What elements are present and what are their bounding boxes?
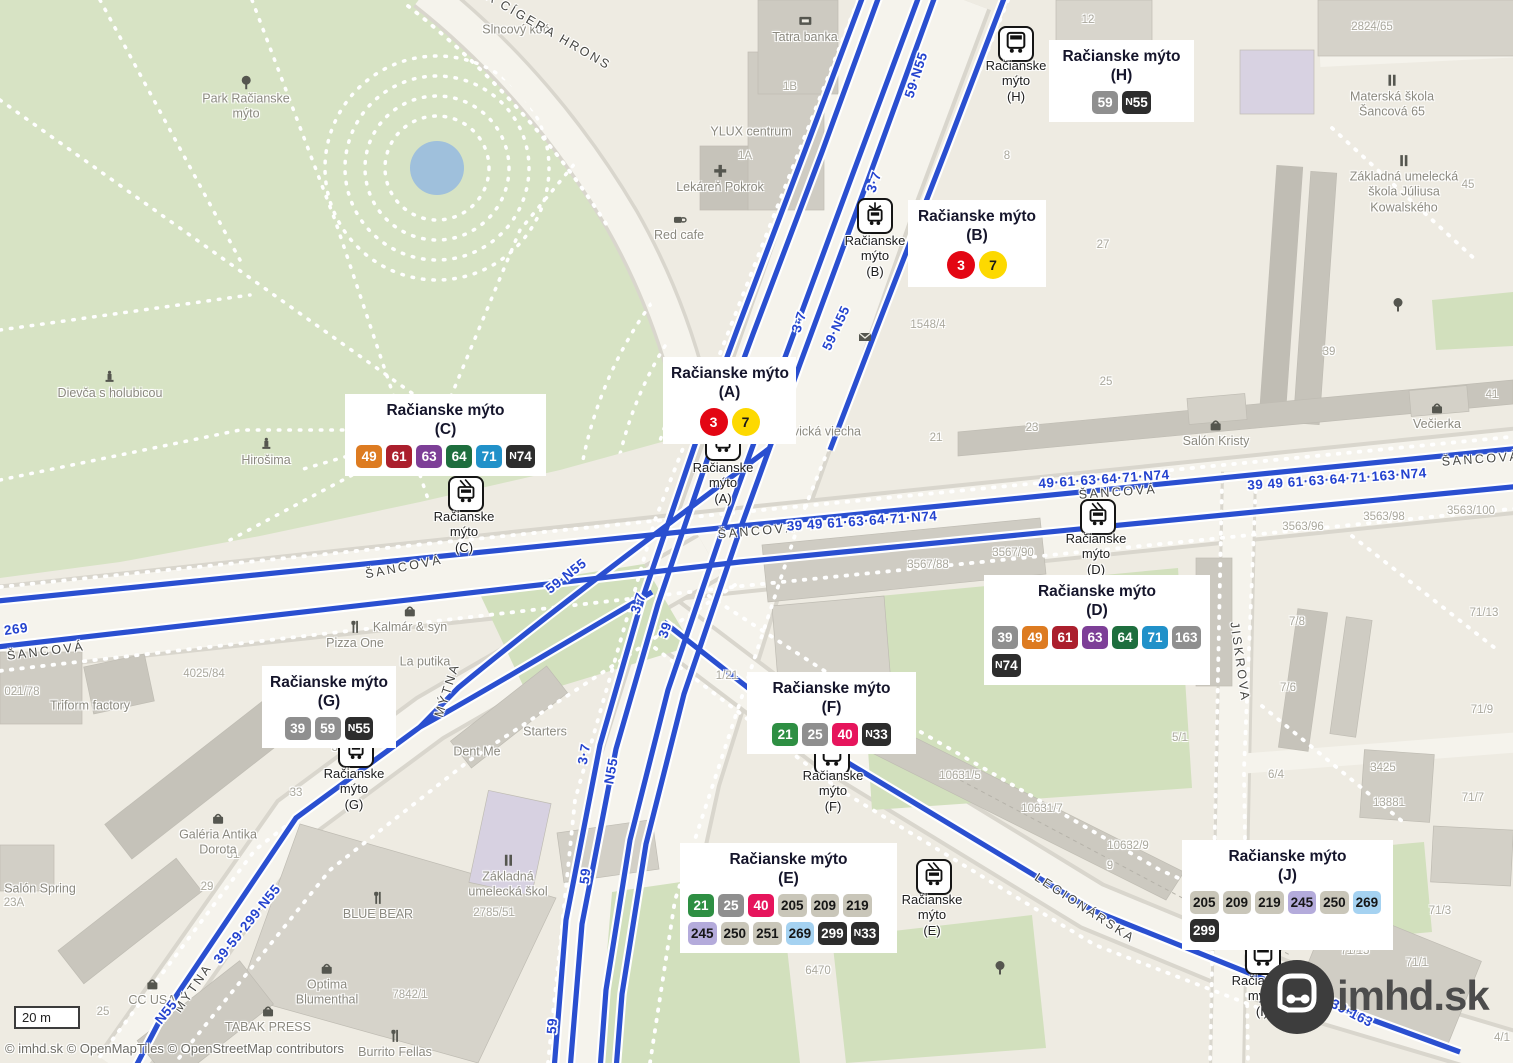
route-badge-25: 25: [802, 723, 828, 746]
imhd-logo[interactable]: imhd.sk: [1258, 958, 1489, 1034]
poi-label: Základnáumelecká škol: [468, 852, 547, 900]
street-label: MÝTNA: [432, 661, 463, 719]
route-number-label: 59: [544, 1017, 560, 1034]
route-badge-49: 49: [1022, 626, 1048, 649]
stop-label: Račianskemýto(A): [693, 460, 754, 506]
stop-label: Račianskemýto(H): [986, 58, 1047, 104]
callout-platform: (B): [916, 226, 1038, 245]
route-badge-219: 219: [1255, 891, 1284, 914]
route-badge-7: 7: [732, 408, 760, 436]
parcel-label: 7/8: [1289, 616, 1305, 628]
route-badge-N74: N74: [992, 654, 1021, 677]
stop-callout-B: Račianske mýto(B)37: [908, 200, 1046, 287]
callout-title: Račianske mýto: [671, 364, 788, 383]
parcel-label: 4025/84: [183, 668, 225, 680]
parcel-label: 2824/65: [1351, 21, 1393, 33]
route-badge-61: 61: [1052, 626, 1078, 649]
callout-platform: (G): [270, 692, 388, 711]
parcel-label: 41: [1486, 389, 1499, 401]
map-viewport[interactable]: 122824/651B1A845271548/439252321413563/9…: [0, 0, 1513, 1063]
street-label: ŠANCOVÁ: [364, 553, 444, 582]
school-icon: [1384, 72, 1400, 88]
poi-label: Triform factory: [50, 698, 130, 713]
parcel-label: 21: [930, 432, 943, 444]
route-number-label: 3·7: [789, 310, 810, 335]
route-badge-21: 21: [772, 723, 798, 746]
route-badge-59: 59: [1092, 91, 1118, 114]
parcel-label: 25: [97, 1006, 110, 1018]
callout-badge-row: 4961636471N74: [353, 445, 538, 468]
parcel-label: 33: [290, 787, 303, 799]
route-number-label: 59·N55: [819, 303, 853, 352]
scale-bar-label: 20 m: [22, 1010, 51, 1025]
callout-title: Račianske mýto: [353, 401, 538, 420]
route-badge-219: 219: [843, 894, 872, 917]
route-badge-245: 245: [688, 922, 717, 945]
parcel-label: 5/1: [1172, 732, 1188, 744]
stop-callout-D: Račianske mýto(D)394961636471163N74: [984, 575, 1210, 685]
shop-icon: [319, 960, 335, 976]
parcel-label: 1/21: [716, 670, 738, 682]
stop-callout-E: Račianske mýto(E)21254020520921924525025…: [680, 843, 897, 953]
route-number-label: 39·59·299·N55: [211, 881, 284, 966]
poi-label: Salón Spring: [4, 881, 76, 896]
route-number-label: 59·N55: [543, 556, 589, 597]
atm-icon: [797, 13, 813, 29]
poi-label: Hirošima: [241, 436, 290, 468]
route-badge-269: 269: [1353, 891, 1382, 914]
parcel-label: 2785/51: [473, 907, 515, 919]
tree-icon: [238, 74, 254, 90]
route-badge-49: 49: [356, 445, 382, 468]
parcel-label: 10632/9: [1107, 840, 1149, 852]
street-label: JISKROVA: [1227, 621, 1252, 703]
route-badge-64: 64: [446, 445, 472, 468]
poi-label: Lekáreň Pokrok: [676, 163, 764, 195]
route-badge-71: 71: [476, 445, 502, 468]
label-overlay: 122824/651B1A845271548/439252321413563/9…: [0, 0, 1513, 1063]
callout-badge-row: 394961636471163: [992, 626, 1202, 649]
post-icon: [857, 329, 873, 345]
callout-title: Račianske mýto: [992, 582, 1202, 601]
shop-icon: [1208, 417, 1224, 433]
poi-label: [857, 329, 873, 346]
parcel-label: 3563/96: [1282, 521, 1324, 533]
callout-title: Račianske mýto: [755, 679, 908, 698]
route-badge-63: 63: [416, 445, 442, 468]
route-badge-209: 209: [1223, 891, 1252, 914]
route-badge-251: 251: [753, 922, 782, 945]
cross-icon: [712, 163, 728, 179]
callout-title: Račianske mýto: [916, 207, 1038, 226]
scale-bar: 20 m: [14, 1006, 80, 1029]
poi-label: Pizza One: [326, 619, 384, 651]
parcel-label: 25: [1100, 376, 1113, 388]
parcel-label: 23: [1026, 422, 1039, 434]
poi-label: Kalmár & syn: [373, 603, 447, 635]
poi-label: Tatra banka: [772, 13, 837, 45]
poi-label: Dievča s holubicou: [58, 369, 163, 401]
poi-label: BLUE BEAR: [343, 890, 413, 922]
route-badge-205: 205: [1190, 891, 1219, 914]
parcel-label: 45: [1462, 179, 1475, 191]
route-badge-299: 299: [1190, 919, 1219, 942]
callout-platform: (A): [671, 383, 788, 402]
stop-callout-F: Račianske mýto(F)212540N33: [747, 672, 916, 754]
cafe-icon: [671, 211, 687, 227]
poi-label: Dent Me: [453, 744, 500, 759]
route-badge-N55: N55: [345, 717, 374, 740]
callout-platform: (J): [1190, 866, 1385, 885]
parcel-label: 71/13: [1470, 607, 1499, 619]
route-number-label: N55: [601, 757, 620, 785]
poi-label: Základná umeleckáškola JúliusaKowalského: [1350, 153, 1458, 216]
tree-icon: [992, 960, 1008, 976]
route-badge-3: 3: [700, 408, 728, 436]
parcel-label: 39: [1323, 346, 1336, 358]
parcel-label: 6/4: [1268, 769, 1284, 781]
route-badge-250: 250: [1320, 891, 1349, 914]
map-attribution: © imhd.sk © OpenMapTiles © OpenStreetMap…: [5, 1041, 344, 1056]
route-badge-209: 209: [811, 894, 840, 917]
parcel-label: 10631/5: [939, 770, 981, 782]
route-number-label: 269: [3, 620, 29, 638]
route-badge-64: 64: [1112, 626, 1138, 649]
route-badge-163: 163: [1172, 626, 1201, 649]
parcel-label: 3563/100: [1447, 505, 1495, 517]
parcel-label: 4/1: [1494, 1032, 1510, 1044]
imhd-logo-text: imhd.sk: [1337, 972, 1489, 1020]
street-label: ŠANCOVÁ: [1441, 449, 1513, 468]
callout-badge-row: N74: [992, 654, 1202, 677]
route-number-label: 3·7: [628, 591, 649, 616]
route-number-label: 3·7: [864, 170, 885, 195]
route-badge-40: 40: [748, 894, 774, 917]
route-badge-39: 39: [992, 626, 1018, 649]
stop-label: Račianskemýto(B): [845, 233, 906, 279]
route-badge-59: 59: [315, 717, 341, 740]
parcel-label: 71/9: [1471, 704, 1493, 716]
parcel-label: 3567/90: [992, 547, 1034, 559]
monument-icon: [258, 436, 274, 452]
restaurant-icon: [370, 890, 386, 906]
parcel-label: 3563/98: [1363, 511, 1405, 523]
callout-badge-row: 3959N55: [270, 717, 388, 740]
parcel-label: 9: [1107, 860, 1113, 872]
bus-stop-marker[interactable]: [998, 26, 1034, 62]
route-badge-N33: N33: [851, 922, 880, 945]
poi-label: [1390, 297, 1406, 314]
callout-platform: (D): [992, 601, 1202, 620]
callout-badge-row: 37: [671, 408, 788, 436]
callout-badge-row: 212540205209219: [688, 894, 889, 917]
street-label: ŠANCOVÁ: [717, 521, 797, 542]
stop-callout-C: Račianske mýto(C)4961636471N74: [345, 394, 546, 476]
trolleybus-icon: [451, 477, 481, 512]
parcel-label: 3567/88: [907, 559, 949, 571]
callout-title: Račianske mýto: [688, 850, 889, 869]
route-badge-299: 299: [818, 922, 847, 945]
stop-label: Račianskemýto(F): [803, 768, 864, 814]
callout-title: Račianske mýto: [1190, 847, 1385, 866]
street-label: LEGIONÁRSKA: [1032, 870, 1138, 946]
stop-callout-J: Račianske mýto(J)205209219245250269299: [1182, 840, 1393, 950]
poi-label: Park Račianskemýto: [202, 74, 290, 122]
poi-label: Starters: [523, 724, 567, 739]
tree-icon: [1390, 297, 1406, 313]
shop-icon: [144, 976, 160, 992]
route-badge-40: 40: [832, 723, 858, 746]
bus-icon: [1001, 27, 1031, 62]
callout-title: Račianske mýto: [1057, 47, 1186, 66]
poi-label: Galéria AntikaDorota: [179, 810, 257, 858]
parcel-label: 71/7: [1462, 792, 1484, 804]
poi-label: [992, 960, 1008, 977]
shop-icon: [210, 810, 226, 826]
street-label: ŠANCOVÁ: [6, 639, 86, 662]
callout-badge-row: 212540N33: [755, 723, 908, 746]
route-badge-245: 245: [1288, 891, 1317, 914]
callout-platform: (H): [1057, 66, 1186, 85]
stop-label: Račianskemýto(G): [324, 766, 385, 812]
school-icon: [500, 852, 516, 868]
route-badge-21: 21: [688, 894, 714, 917]
route-number-label: 39 49 61·63·64·71·N74: [786, 508, 938, 533]
poi-label: OptimaBlumenthal: [296, 960, 359, 1008]
parcel-label: 71/3: [1429, 905, 1451, 917]
route-badge-N55: N55: [1122, 91, 1151, 114]
parcel-label: 6470: [805, 965, 831, 977]
parcel-label: 1548/4: [910, 319, 945, 331]
parcel-label: 3425: [1370, 762, 1396, 774]
callout-badge-row: 245250251269299N33: [688, 922, 889, 945]
trolleybus-icon: [919, 860, 949, 895]
route-badge-N33: N33: [862, 723, 891, 746]
callout-platform: (F): [755, 698, 908, 717]
stop-label: Račianskemýto(D): [1066, 531, 1127, 577]
shop-icon: [402, 603, 418, 619]
parcel-label: 23A: [4, 897, 24, 909]
callout-badge-row: 37: [916, 251, 1038, 279]
poi-label: Salón Kristy: [1183, 417, 1250, 449]
trolleybus-stop-marker[interactable]: [1080, 499, 1116, 535]
stop-callout-A: Račianske mýto(A)37: [663, 357, 796, 444]
poi-label: Večierka: [1413, 400, 1461, 432]
trolleybus-stop-marker[interactable]: [448, 476, 484, 512]
callout-badge-row: 205209219245250269: [1190, 891, 1385, 914]
parcel-label: 29: [201, 881, 214, 893]
restaurant-icon: [387, 1028, 403, 1044]
parcel-label: 7842/1: [392, 989, 427, 1001]
parcel-label: 1B: [783, 81, 797, 93]
route-number-label: 39 49 61·63·64·71·163·N74: [1247, 465, 1427, 493]
tram-stop-marker[interactable]: [857, 198, 893, 234]
parcel-label: 27: [1097, 239, 1110, 251]
shop-icon: [1429, 400, 1445, 416]
route-badge-N74: N74: [506, 445, 535, 468]
route-badge-61: 61: [386, 445, 412, 468]
callout-badge-row: 299: [1190, 919, 1385, 942]
route-badge-71: 71: [1142, 626, 1168, 649]
callout-platform: (E): [688, 869, 889, 888]
route-number-label: 39: [655, 620, 674, 640]
route-badge-63: 63: [1082, 626, 1108, 649]
route-badge-39: 39: [285, 717, 311, 740]
parcel-label: 10631/7: [1021, 803, 1063, 815]
route-badge-205: 205: [778, 894, 807, 917]
parcel-label: 021/78: [4, 686, 39, 698]
parcel-label: 12: [1082, 14, 1095, 26]
monument-icon: [102, 369, 118, 385]
route-number-label: 3·7: [575, 742, 593, 765]
stop-label: Račianskemýto(E): [902, 892, 963, 938]
callout-title: Račianske mýto: [270, 673, 388, 692]
imhd-logo-icon: [1258, 958, 1334, 1034]
route-number-label: 59·N55: [902, 50, 931, 100]
route-badge-3: 3: [947, 251, 975, 279]
trolleybus-stop-marker[interactable]: [916, 859, 952, 895]
route-badge-25: 25: [718, 894, 744, 917]
school-icon: [1396, 153, 1412, 169]
restaurant-icon: [347, 619, 363, 635]
callout-badge-row: 59N55: [1057, 91, 1186, 114]
stop-callout-H: Račianske mýto(H)59N55: [1049, 40, 1194, 122]
poi-label: YLUX centrum: [710, 124, 791, 139]
poi-label: La putika: [400, 654, 451, 669]
trolleybus-icon: [1083, 500, 1113, 535]
callout-platform: (C): [353, 420, 538, 439]
parcel-label: 1A: [738, 150, 752, 162]
parcel-label: 8: [1004, 150, 1010, 162]
route-number-label: 59: [577, 867, 594, 885]
poi-label: Materská školaŠancová 65: [1350, 72, 1434, 120]
stop-callout-G: Račianske mýto(G)3959N55: [262, 666, 396, 748]
poi-label: Red cafe: [654, 211, 704, 243]
tram-icon: [860, 199, 890, 234]
stop-label: Račianskemýto(C): [434, 509, 495, 555]
parcel-label: 13881: [1373, 797, 1405, 809]
poi-label: TABAK PRESS: [225, 1003, 311, 1035]
route-badge-7: 7: [979, 251, 1007, 279]
parcel-label: 7/6: [1280, 682, 1296, 694]
route-badge-269: 269: [786, 922, 815, 945]
shop-icon: [260, 1003, 276, 1019]
poi-label: Burrito Fellas: [358, 1028, 432, 1060]
route-badge-250: 250: [721, 922, 750, 945]
